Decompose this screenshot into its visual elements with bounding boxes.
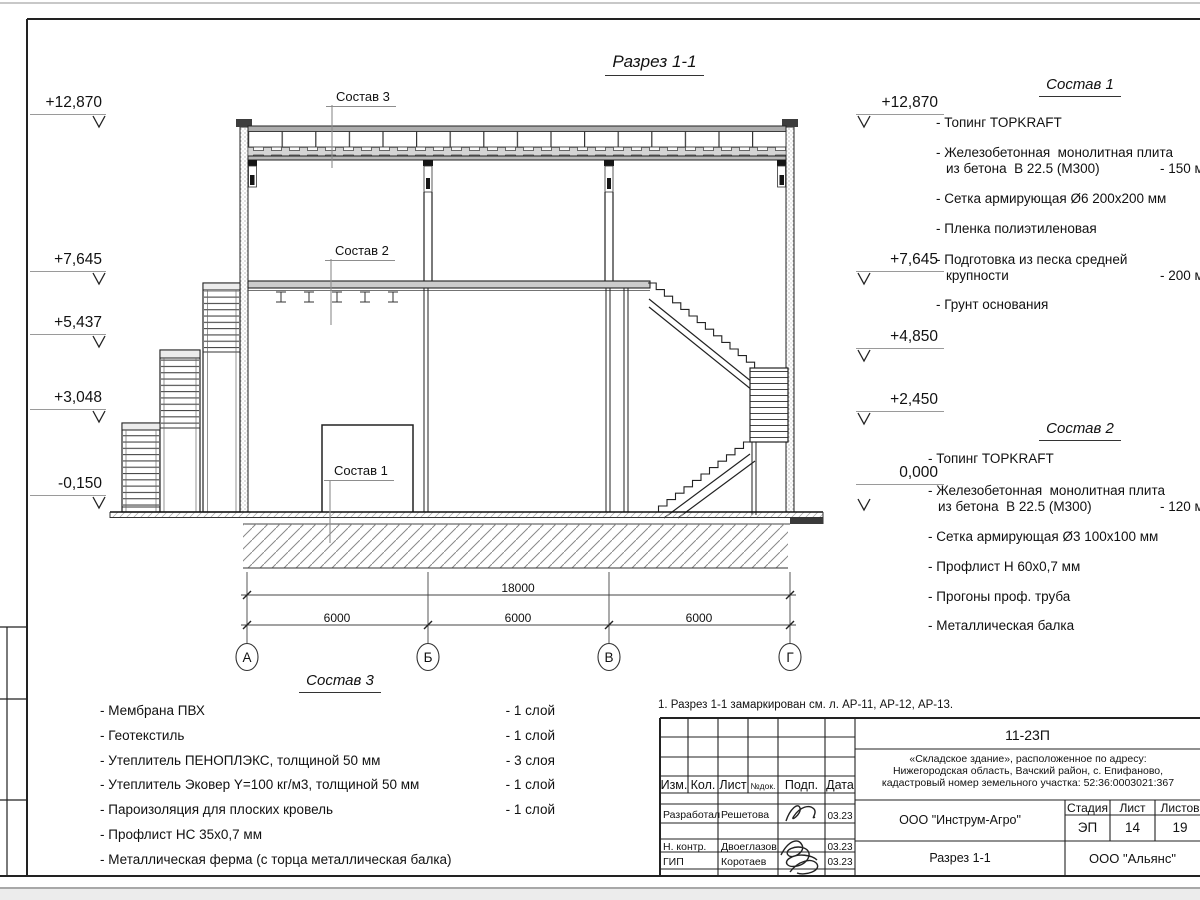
tb-col-kol: Кол. — [688, 778, 718, 792]
tb-name-1: Двоеглазов — [721, 841, 777, 853]
tb-sheet-label: Лист — [1110, 801, 1155, 815]
tb-col-doc: №док. — [748, 781, 778, 791]
comp2-row: - Прогоны проф. труба — [928, 589, 1070, 604]
comp1-value: - 200 мм — [1160, 268, 1200, 283]
dim-bay-3: 6000 — [659, 611, 739, 625]
callout-comp2: Состав 2 — [325, 243, 395, 261]
ibeam-symbols — [276, 292, 398, 302]
callout-comp3: Состав 3 — [326, 89, 396, 107]
tb-stage: ЭП — [1065, 820, 1110, 835]
axis-bubbles — [236, 644, 801, 671]
drawing-title: Разрез 1-1 — [605, 52, 703, 76]
floor-slab — [248, 281, 650, 302]
comp2-row: - Профлист Н 60x0,7 мм — [928, 559, 1080, 574]
comp1-row: - Подготовка из песка средней — [936, 252, 1127, 267]
comp3-row: - Утеплитель ПЕНОПЛЭКС, толщиной 50 мм — [100, 753, 380, 768]
elevation-left-3: +3,048 — [30, 389, 106, 410]
tb-object-line2: Нижегородская область, Вачский район, с.… — [858, 765, 1198, 777]
comp2-row: - Сетка армирующая Ø3 100x100 мм — [928, 529, 1158, 544]
dim-bay-2: 6000 — [478, 611, 558, 625]
elevation-right-0: +12,870 — [856, 94, 944, 115]
tb-col-list: Лист — [718, 778, 748, 792]
drawing-sheet: Разрез 1-1 +12,870 +7,645 +5,437 +3,048 … — [0, 0, 1200, 900]
comp3-value: - 3 слоя — [495, 753, 555, 768]
comp2-header: Состав 2 — [1039, 420, 1121, 441]
tb-doc-number: 11-23П — [855, 727, 1200, 743]
tb-col-izm: Изм. — [660, 778, 688, 792]
tb-name-2: Коротаев — [721, 856, 766, 868]
comp2-row: из бетона В 22.5 (М300) — [938, 499, 1092, 514]
tb-role-2: ГИП — [663, 856, 684, 868]
comp1-row: - Железобетонная монолитная плита — [936, 145, 1173, 160]
elevation-left-1: +7,645 — [30, 251, 106, 272]
tb-col-data: Дата — [825, 778, 855, 792]
comp1-row: из бетона В 22.5 (М300) — [946, 161, 1100, 176]
comp2-row: - Металлическая балка — [928, 618, 1074, 633]
walls — [236, 119, 798, 512]
comp3-row: - Профлист НС 35x0,7 мм — [100, 827, 262, 842]
comp3-row: - Утеплитель Эковер Y=100 кг/м3, толщино… — [100, 777, 419, 792]
comp2-value: - 120 мм — [1160, 499, 1200, 514]
comp3-header: Состав 3 — [299, 672, 381, 693]
comp2-row: - Железобетонная монолитная плита — [928, 483, 1165, 498]
comp3-value: - 1 слой — [495, 802, 555, 817]
tb-name-0: Решетова — [721, 809, 769, 821]
elevation-right-4: 0,000 — [856, 464, 944, 485]
comp1-row: крупности — [946, 268, 1009, 283]
columns — [423, 160, 614, 283]
tb-date-1: 03.23 — [826, 842, 854, 853]
inner-walls — [424, 288, 628, 512]
tb-date-2: 03.23 — [826, 857, 854, 868]
comp2-header-wrap: Состав 2 — [1000, 420, 1160, 441]
comp3-row: - Металлическая ферма (с торца металличе… — [100, 852, 452, 867]
drawing-title-wrap: Разрез 1-1 — [540, 34, 760, 76]
comp3-row: - Геотекстиль — [100, 728, 184, 743]
axis-label-v: В — [597, 650, 621, 665]
note-text: 1. Разрез 1-1 замаркирован см. л. АР-11,… — [658, 699, 953, 712]
comp1-row: - Грунт основания — [936, 297, 1048, 312]
side-table — [0, 627, 27, 876]
staircase — [648, 283, 788, 518]
elevation-right-2: +4,850 — [856, 328, 944, 349]
callout-comp1: Состав 1 — [324, 463, 394, 481]
tb-col-podp: Подп. — [778, 778, 825, 792]
tb-client: ООО "Инструм-Агро" — [855, 813, 1065, 827]
ground — [110, 512, 823, 568]
tb-object-line3: кадастровый номер земельного участка: 52… — [858, 777, 1198, 789]
elevation-right-3: +2,450 — [856, 391, 944, 412]
axis-label-a: А — [235, 650, 259, 665]
comp3-value: - 1 слой — [495, 777, 555, 792]
elevation-left-0: +12,870 — [30, 94, 106, 115]
tb-sheets-label: Листов — [1155, 801, 1200, 815]
comp3-row: - Мембрана ПВХ — [100, 703, 205, 718]
tb-object-line1: «Складское здание», расположенное по адр… — [858, 753, 1198, 765]
comp1-header: Состав 1 — [1039, 76, 1121, 97]
axis-label-b: Б — [416, 650, 440, 665]
comp3-row: - Пароизоляция для плоских кровель — [100, 802, 333, 817]
tb-stage-label: Стадия — [1065, 801, 1110, 815]
roof — [248, 126, 786, 160]
building-section — [110, 119, 823, 568]
axis-label-g: Г — [778, 650, 802, 665]
tb-sheets: 19 — [1155, 820, 1200, 835]
tb-sheet: 14 — [1110, 820, 1155, 835]
roof-brackets — [248, 160, 786, 187]
comp3-header-wrap: Состав 3 — [260, 672, 420, 693]
comp3-value: - 1 слой — [495, 728, 555, 743]
comp1-row: - Сетка армирующая Ø6 200x200 мм — [936, 191, 1166, 206]
comp3-value: - 1 слой — [495, 703, 555, 718]
tb-role-1: Н. контр. — [663, 841, 706, 853]
comp1-row: - Пленка полиэтиленовая — [936, 221, 1097, 236]
elevation-left-4: -0,150 — [30, 475, 106, 496]
comp1-header-wrap: Состав 1 — [1000, 76, 1160, 97]
tb-sheet-title: Разрез 1-1 — [855, 851, 1065, 865]
tb-date-0: 03.23 — [826, 811, 854, 822]
elevation-left-2: +5,437 — [30, 314, 106, 335]
tb-organization: ООО "Альянс" — [1065, 851, 1200, 866]
dim-total: 18000 — [478, 581, 558, 595]
dim-bay-1: 6000 — [297, 611, 377, 625]
elevation-right-1: +7,645 — [856, 251, 944, 272]
comp2-row: - Топинг TOPKRAFT — [928, 451, 1054, 466]
signatures — [781, 806, 818, 874]
comp1-row: - Топинг TOPKRAFT — [936, 115, 1062, 130]
tb-role-0: Разработал — [663, 809, 720, 821]
comp1-value: - 150 мм — [1160, 161, 1200, 176]
